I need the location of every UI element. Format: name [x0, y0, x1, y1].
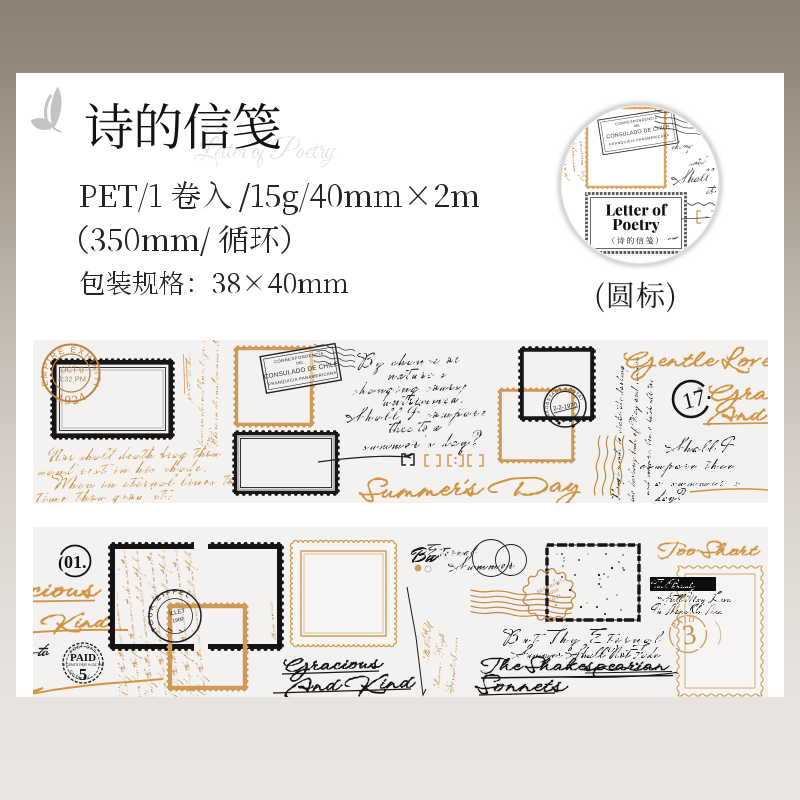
- svg-text:4:32 PM: 4:32 PM: [58, 375, 86, 384]
- svg-text:01.: 01.: [64, 552, 87, 572]
- svg-text:OCT 0: OCT 0: [60, 366, 84, 375]
- svg-text:5: 5: [79, 665, 88, 684]
